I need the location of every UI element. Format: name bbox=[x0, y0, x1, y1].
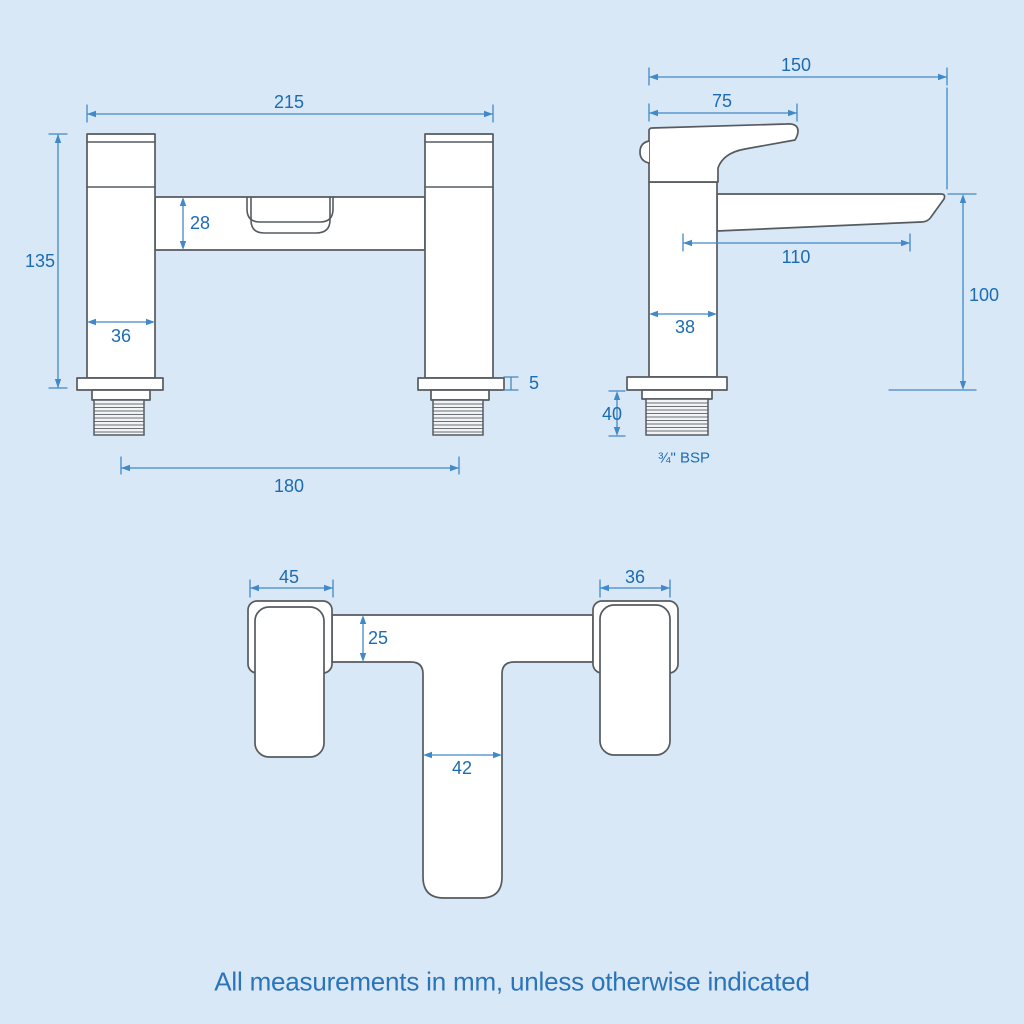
side-body bbox=[649, 182, 717, 377]
front-right-base-plate bbox=[418, 378, 504, 390]
dim-front-base-plate-thickness: 5 bbox=[529, 374, 539, 392]
units-caption: All measurements in mm, unless otherwise… bbox=[214, 967, 809, 998]
dim-side-tail-length: 40 bbox=[602, 405, 622, 423]
side-view-drawing bbox=[627, 124, 945, 435]
drawing-canvas bbox=[0, 0, 1024, 1024]
dim-plan-bar-depth: 25 bbox=[368, 629, 388, 647]
plan-left-lever bbox=[255, 607, 324, 757]
dim-side-spout-reach: 110 bbox=[782, 248, 811, 266]
dim-front-bar-height: 28 bbox=[190, 214, 210, 232]
dim-front-overall-height: 135 bbox=[25, 252, 55, 270]
front-right-nut bbox=[431, 390, 489, 400]
dim-plan-spout-width: 42 bbox=[452, 759, 472, 777]
side-handle-lever bbox=[649, 124, 798, 182]
front-left-base-plate bbox=[77, 378, 163, 390]
dim-side-thread-spec: ¾" BSP bbox=[658, 451, 710, 466]
dim-side-handle-length: 75 bbox=[712, 92, 732, 110]
front-thread-ribs bbox=[94, 404, 483, 432]
side-base-plate bbox=[627, 377, 727, 390]
side-nut bbox=[642, 390, 712, 399]
dim-side-body-depth: 38 bbox=[675, 318, 695, 336]
dim-plan-lever-width: 36 bbox=[625, 568, 645, 586]
technical-drawing-page: 215 135 28 36 5 180 150 75 110 38 100 40… bbox=[0, 0, 1024, 1024]
side-spout bbox=[717, 194, 945, 231]
dim-side-spout-height: 100 bbox=[969, 286, 999, 304]
dim-side-overall-depth: 150 bbox=[781, 56, 811, 74]
front-view-drawing bbox=[77, 134, 504, 435]
dim-front-tail-centres: 180 bbox=[274, 477, 304, 495]
front-left-nut bbox=[92, 390, 150, 400]
front-right-pillar bbox=[425, 134, 493, 378]
plan-bar-and-spout bbox=[332, 615, 593, 898]
dim-plan-handle-width: 45 bbox=[279, 568, 299, 586]
side-handle-pivot bbox=[640, 141, 649, 163]
dim-front-overall-width: 215 bbox=[274, 93, 304, 111]
plan-view-drawing bbox=[248, 601, 678, 898]
dim-front-pillar-width: 36 bbox=[111, 327, 131, 345]
plan-right-lever bbox=[600, 605, 670, 755]
